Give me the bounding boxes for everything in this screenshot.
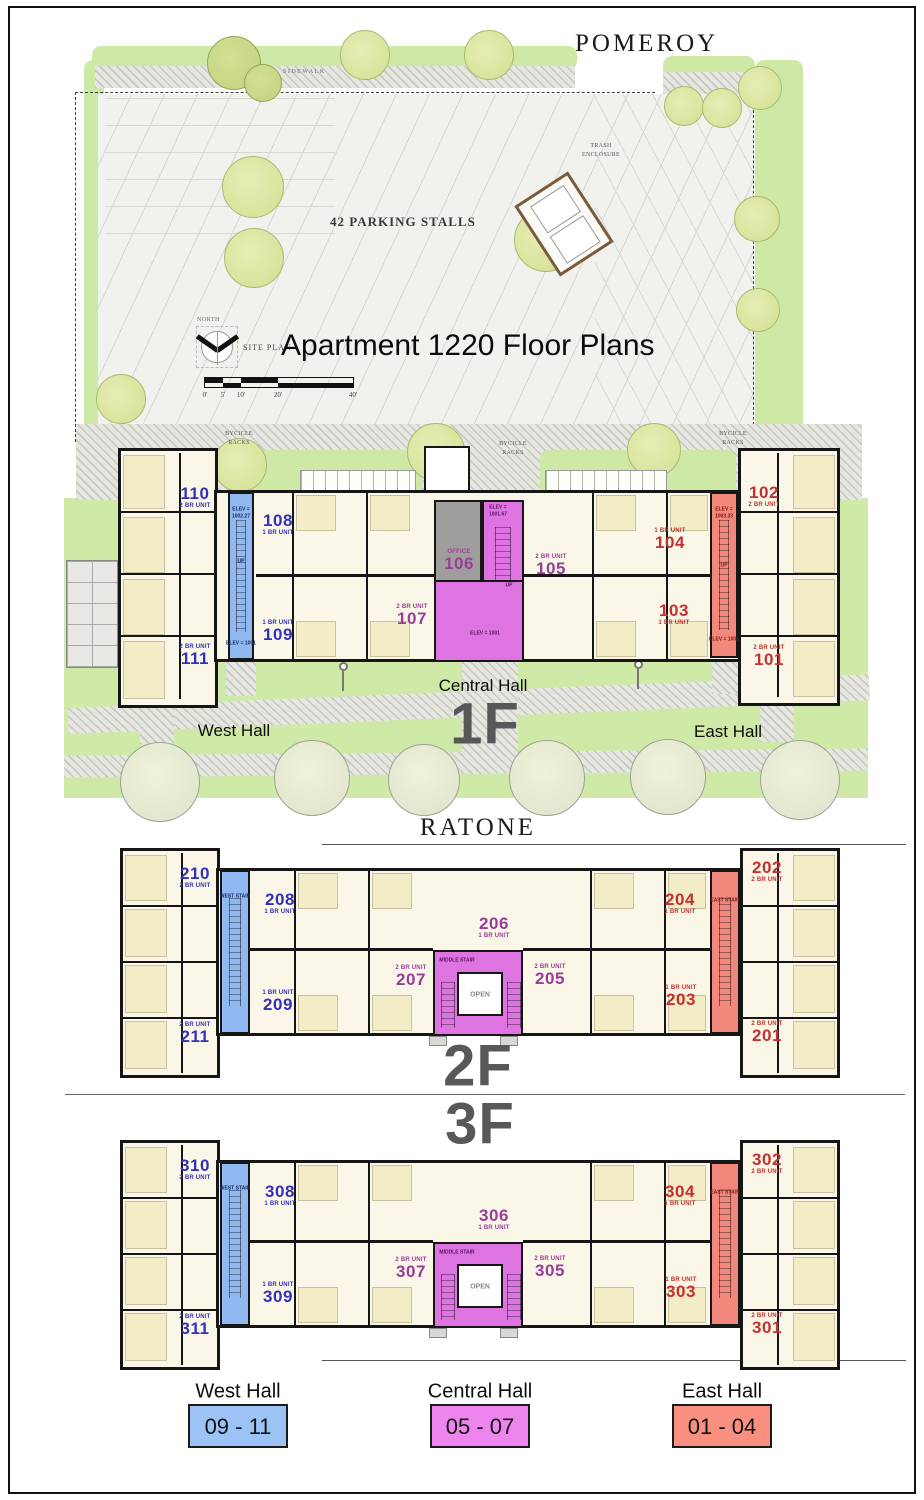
stair-steps — [236, 520, 246, 632]
unit-label-111: 2 BR UNIT111 — [179, 644, 210, 668]
legend-west-box: 09 - 11 — [188, 1404, 288, 1448]
wall — [123, 905, 217, 907]
unit-label-207: 2 BR UNIT207 — [395, 965, 426, 989]
wall — [590, 1163, 592, 1325]
lamp-post — [342, 671, 344, 691]
floor3-east-stair — [710, 1162, 740, 1326]
wall — [741, 511, 837, 513]
up-note: UP — [238, 559, 245, 566]
room — [372, 873, 412, 909]
unit-label-307: 2 BR UNIT307 — [395, 1257, 426, 1281]
up-note: UP — [506, 583, 513, 590]
legend-central-name: Central Hall — [428, 1381, 532, 1404]
entry-vestibule-1f — [424, 446, 470, 492]
bicycle-racks-label: BYCICLE RACKS — [719, 430, 747, 447]
tree — [702, 88, 742, 128]
unit-label-102: 1022 BR UNIT — [748, 484, 779, 508]
wall — [121, 635, 215, 637]
legend-east-box: 01 - 04 — [672, 1404, 772, 1448]
room — [594, 1165, 634, 1201]
room — [125, 1147, 167, 1193]
room — [670, 621, 708, 657]
room — [372, 1165, 412, 1201]
room — [594, 1287, 634, 1323]
plan-sheet: POMEROY SIDEWALK 42 PARKING STALLS TRASH… — [0, 0, 924, 1500]
tree — [96, 374, 146, 424]
unit-label-311: 2 BR UNIT311 — [179, 1314, 210, 1338]
north-label: NORTH — [197, 317, 220, 323]
stair-name: EAST STAIR — [710, 898, 739, 905]
room — [372, 995, 412, 1031]
ratone-sidewalk-line — [322, 844, 906, 845]
walkway-east-wing — [760, 706, 794, 742]
floor-label-2f: 2F — [443, 1033, 513, 1100]
unit-label-110: 1102 BR UNIT — [179, 485, 210, 509]
scale-seg — [205, 378, 223, 383]
lamp-icon — [339, 662, 348, 671]
room — [670, 495, 708, 531]
elev-note: ELEV = 1001.67 — [489, 504, 507, 518]
room — [793, 1257, 835, 1305]
elev-note: ELEV = 1003.33 — [715, 506, 733, 520]
trash-enclosure-label: TRASH ENCLOSURE — [582, 142, 620, 159]
stair-steps — [229, 898, 240, 1007]
unit-label-310: 3102 BR UNIT — [179, 1157, 210, 1181]
tree — [736, 288, 780, 332]
tree — [244, 64, 282, 102]
tree — [738, 66, 782, 110]
room — [793, 855, 835, 901]
room — [125, 1201, 167, 1249]
unit-label-301: 2 BR UNIT301 — [751, 1313, 782, 1337]
pomeroy-street-label: POMEROY — [575, 30, 718, 58]
room — [298, 995, 338, 1031]
unit-label-206: 2061 BR UNIT — [478, 915, 509, 939]
north-axis — [217, 331, 218, 365]
unit-label-305: 2 BR UNIT305 — [534, 1256, 565, 1280]
wall — [121, 511, 215, 513]
stair-steps — [507, 982, 521, 1028]
elev-note: ELEV = 1001 — [709, 637, 739, 644]
floor2-east-stair — [710, 870, 740, 1034]
scale-tick: 0' — [203, 391, 208, 399]
tree — [224, 228, 284, 288]
stair-steps — [229, 1190, 240, 1299]
room — [793, 641, 835, 697]
room — [125, 1021, 167, 1069]
room — [123, 455, 165, 509]
north-arrow-icon — [196, 326, 238, 368]
room — [123, 517, 165, 573]
stair-steps — [441, 982, 455, 1028]
wall — [743, 905, 837, 907]
elev-note: ELEV = 1001 — [226, 641, 256, 648]
room — [370, 495, 410, 531]
unit-label-302: 3022 BR UNIT — [751, 1151, 782, 1175]
stair-steps — [719, 520, 730, 630]
unit-label-308: 3081 BR UNIT — [264, 1183, 295, 1207]
wall — [741, 573, 837, 575]
unit-label-209: 1 BR UNIT209 — [262, 990, 293, 1014]
elev-note: ELEV = 1002.27 — [232, 506, 250, 520]
tree — [464, 30, 514, 80]
walkway-west-wing — [140, 708, 174, 744]
scale-tick: 10' — [237, 391, 245, 399]
tree — [760, 740, 840, 820]
unit-label-107: 2 BR UNIT107 — [396, 604, 427, 628]
unit-label-109: 1 BR UNIT109 — [262, 620, 293, 644]
wall — [368, 871, 370, 1033]
stair-name: WEST STAIR — [220, 894, 250, 901]
room — [123, 579, 165, 635]
tree — [630, 739, 706, 815]
utility-pad — [66, 560, 118, 668]
hall-label-east: East Hall — [694, 722, 762, 742]
room — [296, 621, 336, 657]
unit-label-203: 1 BR UNIT203 — [665, 985, 696, 1009]
room — [298, 1165, 338, 1201]
room — [125, 1313, 167, 1361]
scale-tick: 20' — [274, 391, 282, 399]
ratone-street-label: RATONE — [420, 814, 536, 842]
room — [298, 1287, 338, 1323]
planting-strip-right — [755, 60, 803, 440]
tree — [627, 423, 681, 477]
unit-label-303: 1 BR UNIT303 — [665, 1277, 696, 1301]
unit-label-108: 1081 BR UNIT — [262, 512, 293, 536]
room — [793, 1147, 835, 1193]
wall — [523, 948, 710, 951]
wall — [741, 635, 837, 637]
parking-stall-rows — [105, 98, 335, 248]
up-note: UP — [721, 563, 728, 570]
unit-label-106: OFFICE106 — [444, 549, 474, 573]
room — [125, 855, 167, 901]
room — [372, 1287, 412, 1323]
wall — [743, 1197, 837, 1199]
wall — [368, 1163, 370, 1325]
room — [793, 455, 835, 509]
entry-stub — [429, 1328, 447, 1338]
tree — [120, 742, 200, 822]
open-label: OPEN — [470, 1282, 490, 1291]
property-line-left — [75, 92, 76, 442]
room — [793, 579, 835, 635]
unit-label-210: 2102 BR UNIT — [179, 865, 210, 889]
lamp-post — [637, 669, 639, 689]
wall — [256, 574, 434, 577]
wall — [743, 1017, 837, 1019]
unit-label-103: 1031 BR UNIT — [658, 602, 689, 626]
unit-label-105: 2 BR UNIT105 — [535, 554, 566, 578]
stair-name: MIDDLE STAIR — [439, 958, 474, 965]
unit-label-211: 2 BR UNIT211 — [179, 1022, 210, 1046]
unit-label-309: 1 BR UNIT309 — [262, 1282, 293, 1306]
scale-bar — [205, 378, 353, 387]
unit-label-208: 2081 BR UNIT — [264, 891, 295, 915]
tree — [509, 740, 585, 816]
bicycle-racks-label: BYCICLE RACKS — [499, 440, 527, 457]
room — [123, 641, 165, 699]
wall — [123, 1197, 217, 1199]
unit-label-101: 2 BR UNIT101 — [753, 645, 784, 669]
scale-tick: 5' — [221, 391, 226, 399]
room — [793, 517, 835, 573]
room — [125, 1257, 167, 1305]
room — [125, 965, 167, 1013]
wall — [121, 573, 215, 575]
scale-tick: 40' — [349, 391, 357, 399]
bicycle-racks-label: BYCICLE RACKS — [225, 430, 253, 447]
unit-label-204: 2041 BR UNIT — [664, 891, 695, 915]
room — [296, 495, 336, 531]
scale-seg — [241, 378, 278, 383]
open-label: OPEN — [470, 990, 490, 999]
elev-note: ELEV = 1001 — [470, 631, 500, 638]
unit-label-202: 2022 BR UNIT — [751, 859, 782, 883]
tree — [340, 30, 390, 80]
walkway-west-stair — [226, 662, 256, 696]
bicycle-rack — [545, 470, 667, 492]
legend-east-name: East Hall — [682, 1381, 762, 1404]
room — [298, 873, 338, 909]
entry-stub — [500, 1328, 518, 1338]
wall — [123, 1017, 217, 1019]
wall — [590, 871, 592, 1033]
scale-seg — [223, 383, 241, 388]
room — [594, 995, 634, 1031]
wall — [123, 961, 217, 963]
scale-seg — [278, 383, 353, 388]
stair-name: WEST STAIR — [220, 1186, 250, 1193]
stair-steps — [719, 1190, 730, 1299]
floor-label-3f: 3F — [445, 1091, 515, 1158]
parking-stalls-label: 42 PARKING STALLS — [330, 214, 476, 230]
floor1-middle-lobby — [434, 580, 524, 662]
wall — [743, 961, 837, 963]
unit-label-104: 1 BR UNIT104 — [654, 528, 685, 552]
room — [594, 873, 634, 909]
room — [793, 1021, 835, 1069]
stair-name: EAST STAIR — [710, 1190, 739, 1197]
wall — [743, 1309, 837, 1311]
room — [793, 1313, 835, 1361]
tree — [388, 744, 460, 816]
sidewalk-label: SIDEWALK — [283, 69, 326, 75]
wall — [250, 1240, 433, 1243]
wall — [523, 1240, 710, 1243]
stair-steps — [719, 898, 730, 1007]
bicycle-rack — [300, 470, 416, 492]
room — [793, 1201, 835, 1249]
tree — [734, 196, 780, 242]
room — [125, 909, 167, 957]
room — [793, 909, 835, 957]
room — [793, 965, 835, 1013]
wall — [743, 1253, 837, 1255]
tree — [274, 740, 350, 816]
unit-label-201: 2 BR UNIT201 — [751, 1021, 782, 1045]
wall — [123, 1253, 217, 1255]
room — [596, 495, 636, 531]
unit-label-304: 3041 BR UNIT — [664, 1183, 695, 1207]
room — [596, 621, 636, 657]
unit-label-205: 2 BR UNIT205 — [534, 964, 565, 988]
tree — [664, 86, 704, 126]
wall — [123, 1309, 217, 1311]
stair-steps — [507, 1274, 521, 1320]
stair-steps — [441, 1274, 455, 1320]
tree — [222, 156, 284, 218]
wall — [250, 948, 433, 951]
legend-west-name: West Hall — [195, 1381, 280, 1404]
property-line-right — [753, 95, 754, 435]
stair-name: MIDDLE STAIR — [439, 1250, 474, 1257]
unit-label-306: 3061 BR UNIT — [478, 1207, 509, 1231]
floor-label-1f: 1F — [450, 691, 520, 758]
sheet-title: Apartment 1220 Floor Plans — [281, 329, 655, 363]
property-line-top — [75, 92, 655, 93]
hall-label-west: West Hall — [198, 721, 270, 741]
legend-central-box: 05 - 07 — [430, 1404, 530, 1448]
